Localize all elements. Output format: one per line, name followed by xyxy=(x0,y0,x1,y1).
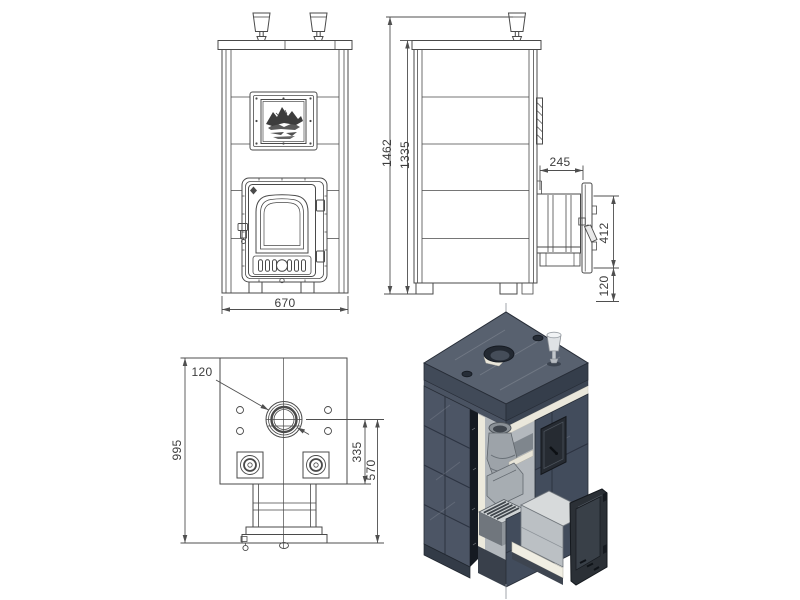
side-top-plate xyxy=(412,41,541,50)
plan-chimney-circle xyxy=(266,402,302,438)
side-firebox-tunnel xyxy=(537,181,597,273)
drawing-canvas xyxy=(0,0,800,600)
dim-tunnel-depth: 245 xyxy=(530,155,590,169)
dim-plan-depth: 995 xyxy=(170,420,184,480)
dim-door-height: 412 xyxy=(597,203,611,263)
plan-vent-right xyxy=(303,452,329,478)
side-body xyxy=(414,50,537,284)
front-view xyxy=(218,13,352,314)
cutaway-3d-view xyxy=(424,303,607,599)
tunnel-door-3d xyxy=(570,489,607,585)
decorative-panel xyxy=(250,92,317,150)
front-chimney-cap-left xyxy=(253,13,270,41)
dim-body-height: 1335 xyxy=(398,125,412,185)
technical-drawing-page: 670 1462 1335 245 412 120 120 995 335 57… xyxy=(0,0,800,600)
side-foot-right xyxy=(500,283,517,294)
cut-section-band xyxy=(470,409,478,567)
dim-door-bottom-offset: 120 xyxy=(597,256,611,316)
plan-vent-left xyxy=(237,452,263,478)
plan-firebox-tunnel xyxy=(241,484,327,551)
maker-logo-diamond xyxy=(250,187,257,195)
front-firebox-door xyxy=(238,178,327,283)
side-door-handle xyxy=(585,225,598,242)
dim-plan-firebox-length: 570 xyxy=(364,440,378,500)
front-foot-left xyxy=(249,282,262,293)
mountain-image xyxy=(266,107,303,139)
front-foot-right xyxy=(301,282,314,293)
dim-plan-chimney-diameter: 120 xyxy=(172,365,232,379)
dim-front-width: 670 xyxy=(255,296,315,310)
dim-total-height: 1462 xyxy=(380,123,394,183)
stone-wall-left xyxy=(424,386,478,578)
door-latch xyxy=(238,224,248,244)
front-chimney-cap-right xyxy=(310,13,327,41)
side-foot-left xyxy=(416,283,433,294)
dim-plan-chimney-offset: 335 xyxy=(350,422,364,482)
front-body xyxy=(222,50,348,294)
